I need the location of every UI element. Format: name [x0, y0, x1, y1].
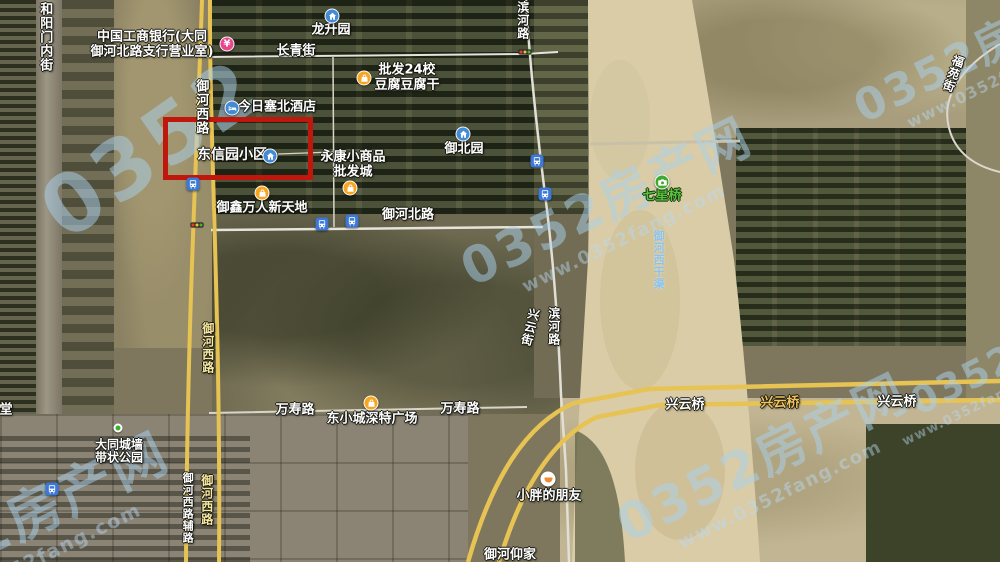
shop-icon-yuxin[interactable] [255, 186, 270, 201]
camera-icon-qixingqiao[interactable] [655, 175, 670, 190]
hotel-icon-saibei[interactable] [225, 101, 240, 116]
shop-icon-pifa24[interactable] [357, 71, 372, 86]
bus-station-icon-5[interactable] [539, 188, 552, 201]
bus-station-icon-1[interactable] [187, 178, 200, 191]
map-markers-layer: ¥ [0, 0, 1000, 562]
house-icon-longshengyuan[interactable] [325, 9, 340, 24]
food-icon-xiaopang[interactable] [541, 472, 556, 487]
bus-station-icon-2[interactable] [316, 218, 329, 231]
park-dot-icon [114, 424, 123, 433]
house-icon-yubeiyuan[interactable] [456, 127, 471, 142]
bus-station-icon-4[interactable] [531, 155, 544, 168]
bank-icon[interactable]: ¥ [220, 37, 235, 52]
traffic-light-icon-1 [519, 50, 532, 55]
bus-station-icon-3[interactable] [346, 215, 359, 228]
shop-icon-yongkang[interactable] [343, 181, 358, 196]
house-icon-dongxinyuan[interactable] [263, 149, 278, 164]
traffic-light-icon-2 [191, 223, 204, 228]
bus-station-icon-6[interactable] [46, 483, 59, 496]
shop-icon-shente[interactable] [364, 396, 379, 411]
satellite-map-canvas[interactable]: 03520352房产网www.0352fang.com0352房产网www.03… [0, 0, 1000, 562]
